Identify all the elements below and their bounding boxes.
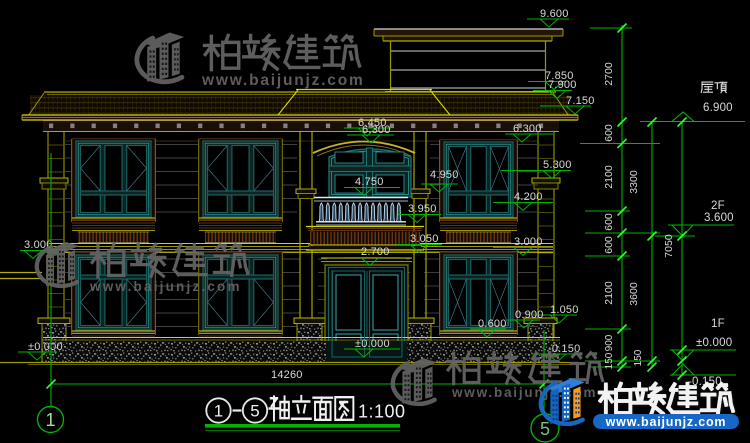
svg-text:1:100: 1:100 bbox=[358, 402, 406, 422]
svg-text:±0.000: ±0.000 bbox=[696, 337, 732, 349]
svg-text:0.900: 0.900 bbox=[515, 309, 544, 321]
svg-text:±0.000: ±0.000 bbox=[355, 338, 390, 350]
svg-text:6.900: 6.900 bbox=[703, 102, 733, 114]
svg-text:7.900: 7.900 bbox=[548, 79, 577, 91]
svg-text:5: 5 bbox=[540, 419, 550, 439]
svg-text:6.300: 6.300 bbox=[362, 124, 391, 136]
svg-text:6.300: 6.300 bbox=[513, 123, 542, 135]
svg-text:600: 600 bbox=[603, 213, 615, 231]
svg-text:600: 600 bbox=[603, 236, 615, 254]
svg-text:3.950: 3.950 bbox=[408, 203, 437, 215]
svg-text:1.050: 1.050 bbox=[550, 304, 579, 316]
svg-text:3.600: 3.600 bbox=[704, 212, 734, 224]
svg-text:1: 1 bbox=[45, 410, 55, 430]
svg-text:3600: 3600 bbox=[628, 282, 640, 306]
svg-text:7.150: 7.150 bbox=[566, 95, 595, 107]
svg-text:2.700: 2.700 bbox=[361, 246, 390, 258]
svg-text:9.600: 9.600 bbox=[540, 8, 569, 20]
svg-text:4.200: 4.200 bbox=[514, 191, 543, 203]
svg-text:1: 1 bbox=[214, 402, 223, 421]
svg-text:5: 5 bbox=[250, 402, 259, 421]
svg-text:900: 900 bbox=[604, 334, 615, 351]
svg-text:www.baijunjz.com: www.baijunjz.com bbox=[201, 72, 365, 89]
svg-text:3.050: 3.050 bbox=[410, 233, 439, 245]
svg-text:2700: 2700 bbox=[603, 62, 615, 86]
svg-text:14260: 14260 bbox=[271, 369, 303, 381]
svg-text:4.950: 4.950 bbox=[430, 169, 459, 181]
svg-text:4.750: 4.750 bbox=[355, 176, 384, 188]
svg-text:±0.000: ±0.000 bbox=[28, 341, 63, 353]
svg-text:0.600: 0.600 bbox=[478, 318, 507, 330]
svg-text:2F: 2F bbox=[711, 200, 725, 212]
svg-text:2100: 2100 bbox=[603, 165, 615, 189]
svg-text:7050: 7050 bbox=[663, 234, 675, 258]
svg-text:150: 150 bbox=[604, 352, 615, 369]
svg-text:600: 600 bbox=[603, 124, 615, 142]
svg-text:150: 150 bbox=[633, 349, 644, 366]
svg-text:3300: 3300 bbox=[628, 170, 640, 194]
svg-text:www.baijunjz.com: www.baijunjz.com bbox=[89, 279, 242, 294]
svg-text:2100: 2100 bbox=[603, 281, 615, 305]
svg-text:5.300: 5.300 bbox=[543, 159, 572, 171]
svg-text:1F: 1F bbox=[711, 318, 725, 330]
svg-text:www.baijunjz.com: www.baijunjz.com bbox=[605, 415, 727, 429]
svg-text:3.000: 3.000 bbox=[514, 236, 543, 248]
